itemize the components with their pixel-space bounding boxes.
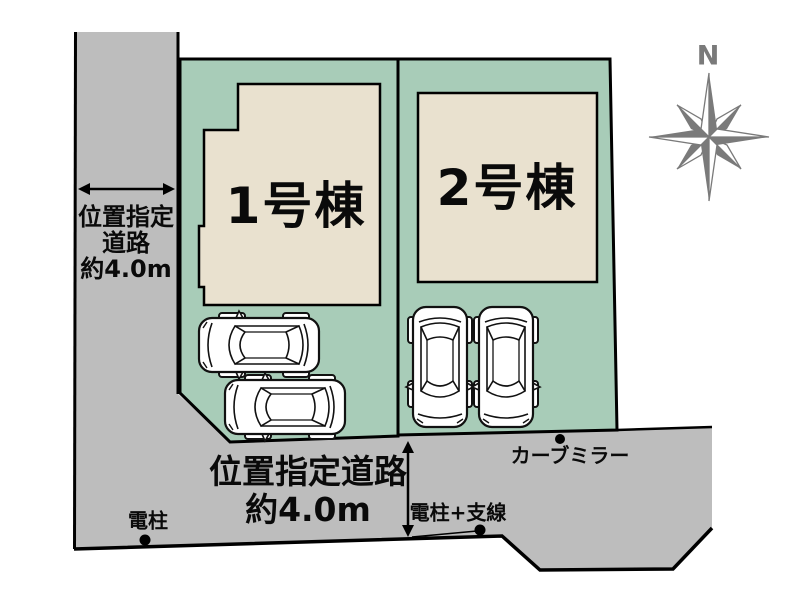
car-icon: [225, 373, 345, 441]
building-1-label: 1号棟: [226, 166, 367, 238]
bottom-road-label-line2: 約4.0m: [209, 491, 407, 529]
utility-pole-label: 電柱: [128, 505, 168, 534]
car-icon: [406, 307, 474, 427]
left-road-label-line1: 位置指定: [78, 204, 174, 230]
compass-rose-icon: [649, 73, 769, 201]
road-left-border: [75, 32, 76, 549]
utility-pole-dot: [140, 535, 151, 546]
bottom-road-label-line1: 位置指定道路: [209, 453, 407, 491]
site-plan: 1号棟 2号棟 位置指定 道路 約4.0m 位置指定道路 約4.0m 電柱 電柱…: [0, 0, 800, 601]
utility-pole-guy-wire-label: 電柱+支線: [410, 497, 507, 526]
curve-mirror-label: カーブミラー: [511, 440, 630, 469]
utility-pole-guy-wire-dot: [475, 525, 486, 536]
left-road-label-line2: 道路: [78, 230, 174, 256]
compass-north-label: N: [697, 41, 720, 72]
left-road-label-line3: 約4.0m: [78, 256, 174, 282]
bottom-road-label: 位置指定道路 約4.0m: [209, 453, 407, 529]
car-icon: [472, 307, 540, 427]
left-road-label: 位置指定 道路 約4.0m: [78, 204, 174, 282]
car-icon: [199, 311, 319, 379]
building-2-label: 2号棟: [437, 148, 578, 220]
